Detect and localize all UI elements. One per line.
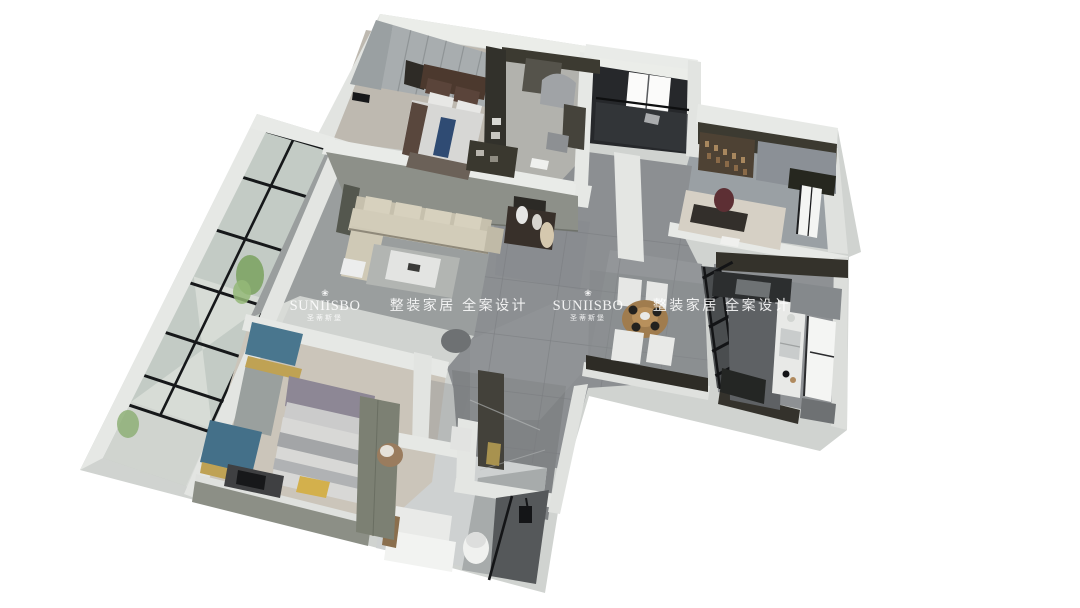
svg-text:SUNIISBO: SUNIISBO bbox=[290, 298, 361, 314]
svg-text:❀: ❀ bbox=[321, 288, 329, 298]
svg-text:❀: ❀ bbox=[584, 288, 592, 298]
svg-text:整装家居 全案设计: 整装家居 全案设计 bbox=[390, 297, 528, 313]
svg-text:圣蒂斯堡: 圣蒂斯堡 bbox=[570, 313, 606, 322]
svg-text:圣蒂斯堡: 圣蒂斯堡 bbox=[307, 313, 343, 322]
svg-text:SUNIISBO: SUNIISBO bbox=[553, 298, 624, 314]
svg-text:整装家居 全案设计: 整装家居 全案设计 bbox=[653, 297, 791, 313]
